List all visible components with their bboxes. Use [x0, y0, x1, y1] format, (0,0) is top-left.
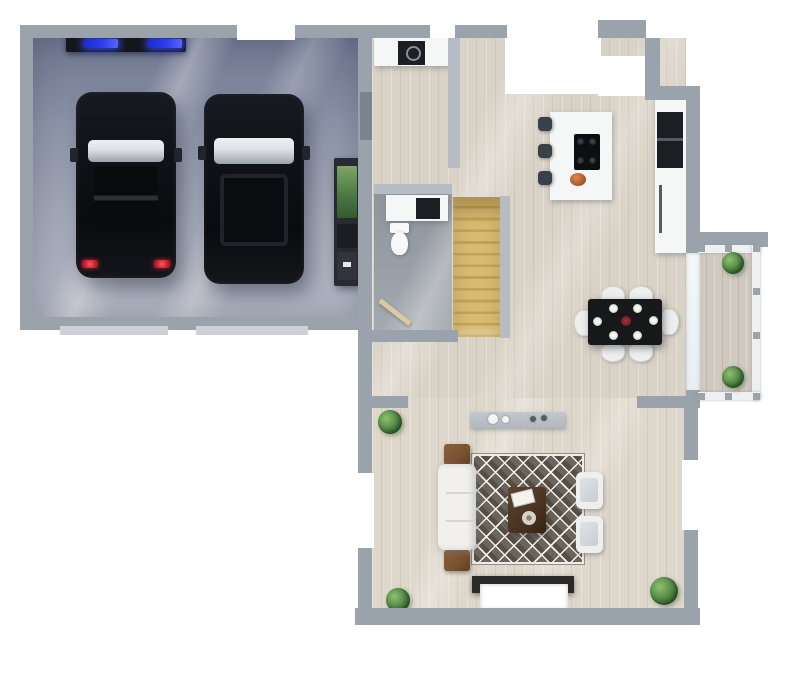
fireplace-inner: [480, 584, 568, 610]
house-wall-top-b: [455, 25, 507, 38]
hall-window: [430, 23, 457, 38]
car-mirror-right: [174, 148, 182, 162]
side-table: [444, 444, 470, 465]
garage-wall-top: [20, 25, 372, 38]
car-panoramic-roof: [220, 174, 288, 246]
entry-porch-side: [598, 56, 650, 96]
console-table: [470, 412, 565, 428]
car-sunroof: [94, 166, 158, 230]
floor-plan-canvas: [0, 0, 800, 673]
garage-wall-left: [20, 25, 33, 330]
shelf-label: [343, 262, 351, 267]
living-window-left: [354, 473, 374, 548]
vase: [488, 414, 498, 424]
entry-porch: [505, 24, 601, 94]
balcony-glass-door: [686, 253, 700, 392]
toilet-bowl: [391, 232, 408, 255]
vase: [502, 416, 509, 423]
car-taillight-right: [154, 260, 170, 268]
wall-wc-bottom: [372, 330, 458, 342]
garage-door-light-right: [148, 39, 182, 48]
car-right: [204, 94, 304, 284]
sofa: [438, 464, 476, 550]
garage-door-light-left: [84, 39, 118, 48]
balcony-rail-right: [752, 245, 760, 400]
living-window-right: [682, 460, 700, 530]
railing-post: [725, 393, 732, 400]
armchair: [576, 516, 603, 553]
car-windshield: [214, 138, 294, 164]
plant: [650, 577, 678, 605]
cabinet-handle: [659, 185, 662, 233]
living-wall-top-left: [372, 396, 408, 408]
railing-post: [698, 245, 705, 252]
railing-post: [753, 393, 760, 400]
dining-chair: [601, 344, 625, 362]
table-centerpiece: [621, 316, 631, 326]
decor-plate: [522, 511, 536, 525]
railing-post: [725, 245, 732, 252]
garage-window: [237, 23, 295, 40]
wc-sink: [416, 198, 440, 219]
car-mirror-right: [302, 146, 310, 160]
cooktop: [574, 134, 600, 170]
garage-house-door: [360, 92, 372, 140]
dining-chair: [629, 344, 653, 362]
armchair: [576, 472, 603, 509]
wall-utility-wc: [374, 184, 452, 194]
vase: [541, 415, 547, 421]
washer-door-ring: [406, 46, 421, 61]
car-mirror-left: [70, 148, 78, 162]
railing-post: [753, 245, 760, 252]
kitchen-wall-right-b: [686, 100, 700, 256]
sofa-cushion-line: [446, 520, 474, 522]
oven-divider: [657, 138, 683, 141]
coffee-table: [508, 487, 546, 533]
books: [511, 489, 536, 508]
fruit-bowl: [570, 173, 586, 186]
kitchen-wall-step: [658, 86, 700, 100]
wall-utility-kitchen: [448, 38, 460, 168]
wall-stairs-side: [500, 196, 510, 338]
vase: [530, 416, 536, 422]
garage-door-threshold: [196, 326, 308, 335]
railing-post: [753, 332, 760, 339]
living-wall-bottom: [355, 608, 700, 625]
staircase: [453, 197, 502, 337]
living-wall-top-right: [637, 396, 698, 408]
balcony-plant: [722, 366, 744, 388]
storage-shelf: [334, 158, 360, 286]
car-mirror-left: [198, 146, 206, 160]
bar-stool: [538, 117, 552, 131]
side-table: [444, 550, 470, 571]
bar-stool: [538, 171, 552, 185]
bar-stool: [538, 144, 552, 158]
armchair-cushion: [580, 478, 598, 502]
car-left: [76, 92, 176, 278]
shelf-plants: [337, 166, 357, 218]
house-wall-top-c: [598, 20, 646, 38]
dining-chair: [661, 309, 679, 335]
dining-table: [588, 299, 662, 345]
car-windshield: [88, 140, 164, 162]
plant: [378, 410, 402, 434]
house-wall-top-a: [372, 25, 430, 38]
car-taillight-left: [82, 260, 98, 268]
sofa-cushion-line: [446, 492, 474, 494]
shelf-box: [337, 224, 357, 248]
armchair-cushion: [580, 522, 598, 546]
washer: [398, 41, 425, 65]
garage-door-threshold: [60, 326, 168, 335]
railing-post: [753, 288, 760, 295]
railing-post: [698, 393, 705, 400]
oven-stack: [657, 112, 683, 168]
balcony-plant: [722, 252, 744, 274]
